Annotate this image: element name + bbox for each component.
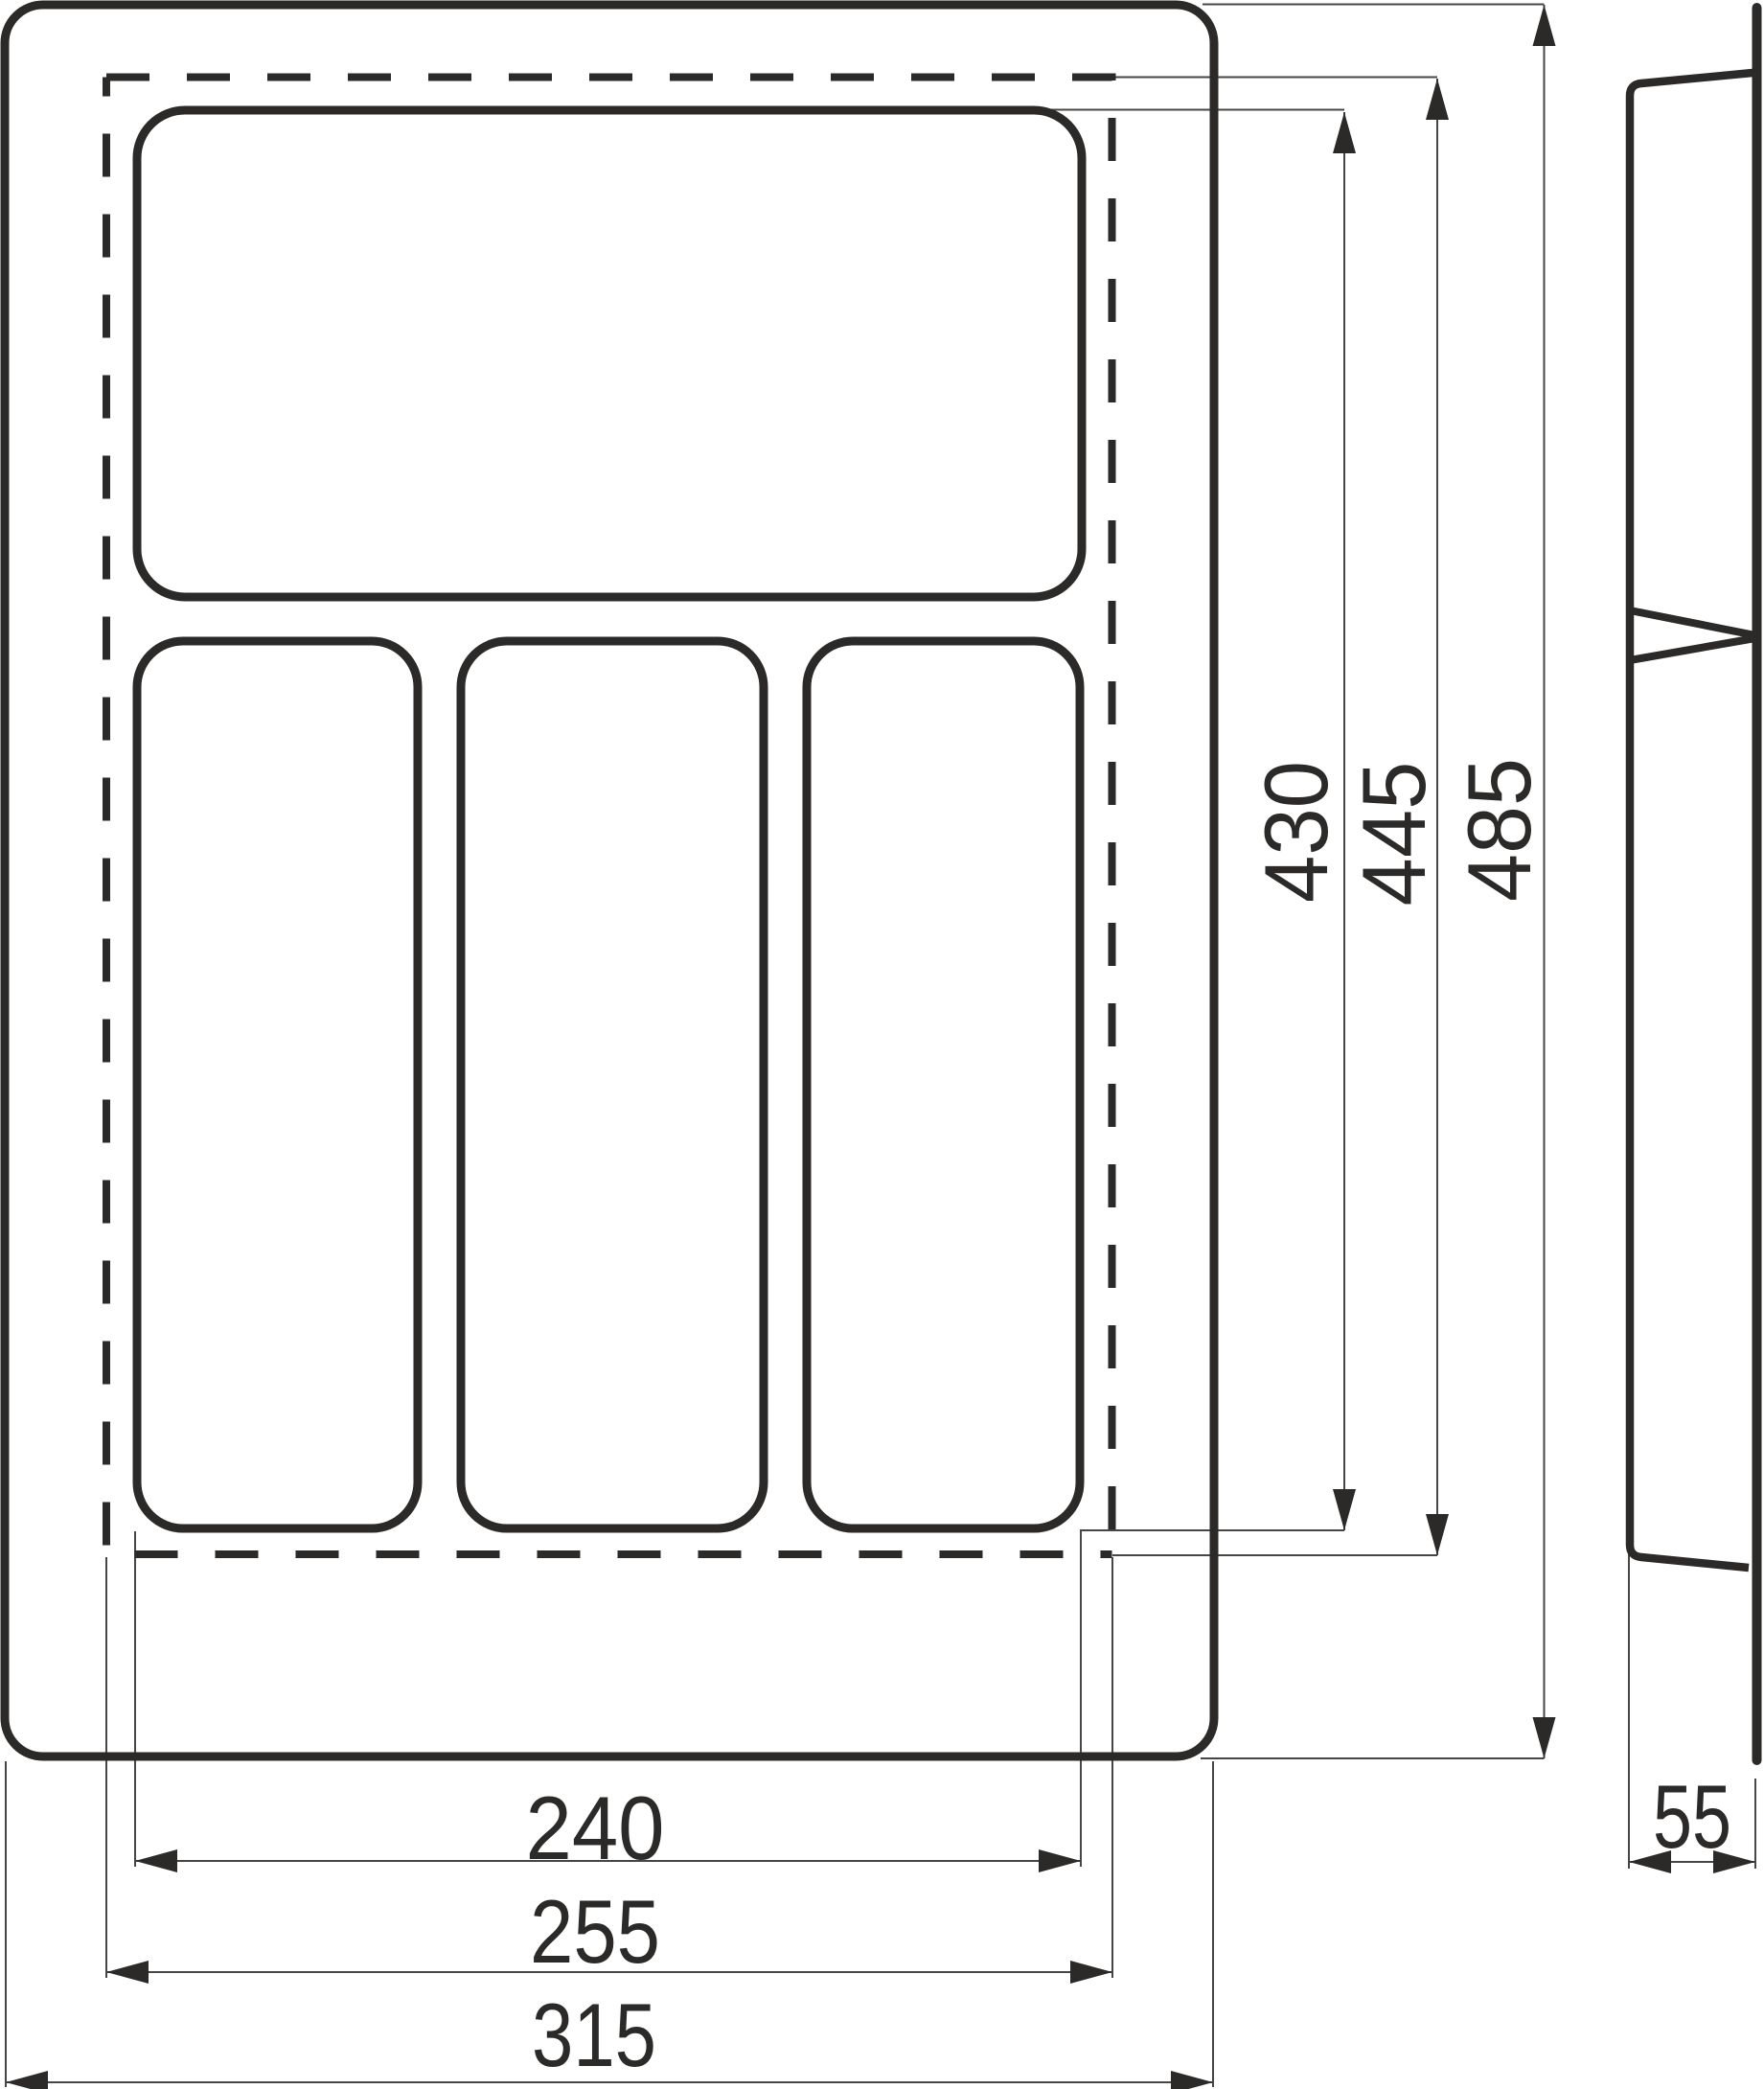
svg-text:240: 240 xyxy=(526,1778,665,1878)
svg-text:430: 430 xyxy=(1246,761,1346,903)
svg-text:255: 255 xyxy=(530,1881,660,1982)
svg-text:55: 55 xyxy=(1653,1766,1731,1867)
svg-text:445: 445 xyxy=(1343,762,1444,907)
svg-text:485: 485 xyxy=(1449,758,1549,902)
svg-text:315: 315 xyxy=(532,1985,656,2085)
